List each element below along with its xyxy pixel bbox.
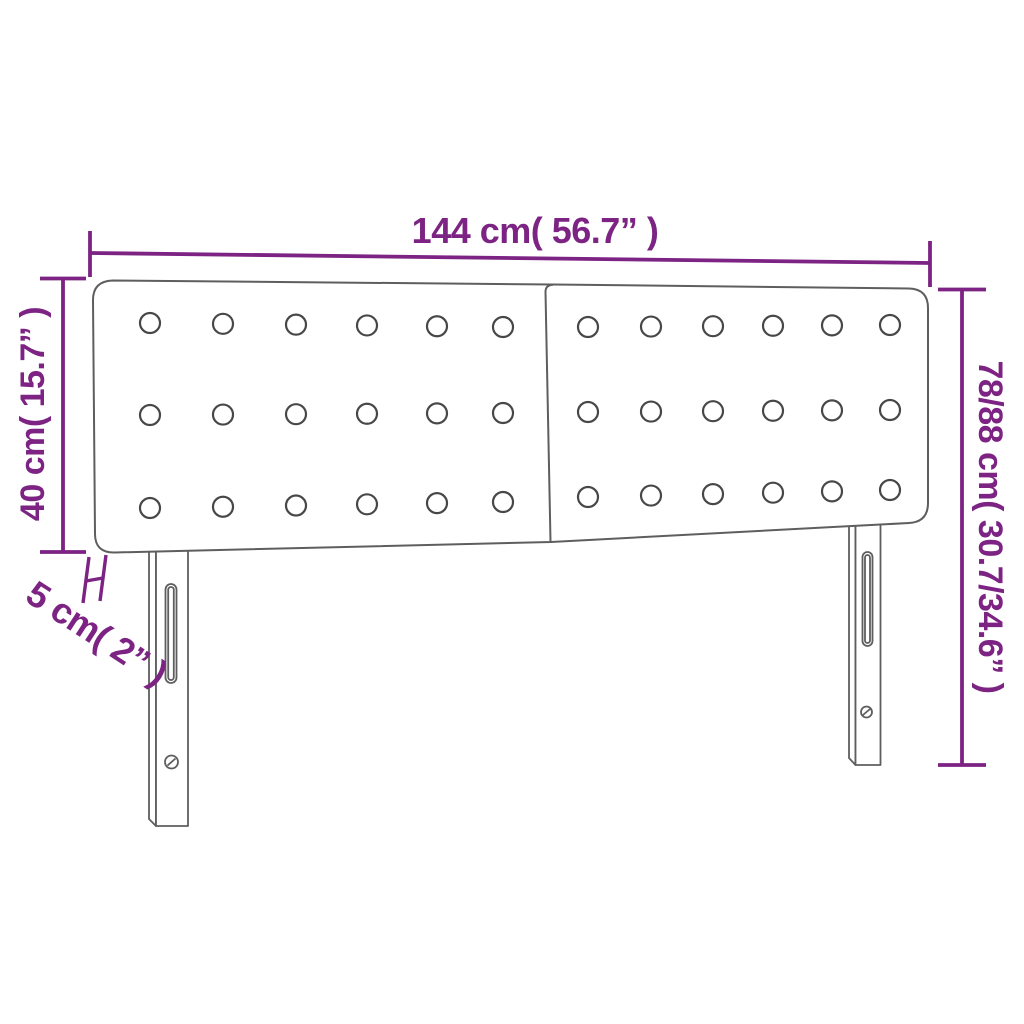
diagram-canvas: 144 cm( 56.7” ) 40 cm( 15.7” ) 78/88 cm(… xyxy=(0,0,1024,1024)
tufting-button xyxy=(763,316,783,336)
tufting-button xyxy=(822,400,842,420)
panel-height-dimension: 40 cm( 15.7” ) xyxy=(14,279,86,553)
tufting-button xyxy=(493,403,513,423)
tufting-button xyxy=(880,400,900,420)
tufting-button xyxy=(578,317,598,337)
headboard-dimension-diagram: 144 cm( 56.7” ) 40 cm( 15.7” ) 78/88 cm(… xyxy=(0,0,1024,1024)
width-dimension: 144 cm( 56.7” ) xyxy=(90,210,930,287)
tufting-button xyxy=(880,315,900,335)
tufting-button xyxy=(213,314,233,334)
tufting-button xyxy=(357,494,377,514)
tufting-button xyxy=(357,404,377,424)
tufting-button xyxy=(140,405,160,425)
thickness-connector xyxy=(86,578,103,581)
tufting-button xyxy=(641,317,661,337)
tufting-button xyxy=(763,483,783,503)
tufting-button xyxy=(822,481,842,501)
tufting-button xyxy=(286,496,306,516)
tufting-button xyxy=(213,405,233,425)
total-height-label: 78/88 cm( 30.7/34.6” ) xyxy=(971,360,1009,693)
width-dimension-label: 144 cm( 56.7” ) xyxy=(412,210,659,251)
panel-height-label: 40 cm( 15.7” ) xyxy=(14,307,52,521)
tufting-button xyxy=(493,492,513,512)
tufting-button xyxy=(578,402,598,422)
tufting-button xyxy=(763,401,783,421)
tufting-button xyxy=(641,486,661,506)
tufting-button xyxy=(703,401,723,421)
tufting-button xyxy=(493,317,513,337)
tufting-button xyxy=(286,315,306,335)
tufting-button xyxy=(357,315,377,335)
tufting-button xyxy=(140,313,160,333)
tufting-button xyxy=(822,315,842,335)
tufting-button xyxy=(140,498,160,518)
tufting-button xyxy=(703,316,723,336)
tufting-button xyxy=(578,487,598,507)
tufting-button xyxy=(427,493,447,513)
tufting-button xyxy=(427,316,447,336)
tufting-button xyxy=(880,480,900,500)
tufting-button xyxy=(286,404,306,424)
tufting-button xyxy=(703,484,723,504)
tufting-button xyxy=(213,497,233,517)
tufting-button xyxy=(427,403,447,423)
width-dimension-line xyxy=(90,253,930,263)
total-height-dimension: 78/88 cm( 30.7/34.6” ) xyxy=(938,290,1009,766)
tufting-button xyxy=(641,402,661,422)
